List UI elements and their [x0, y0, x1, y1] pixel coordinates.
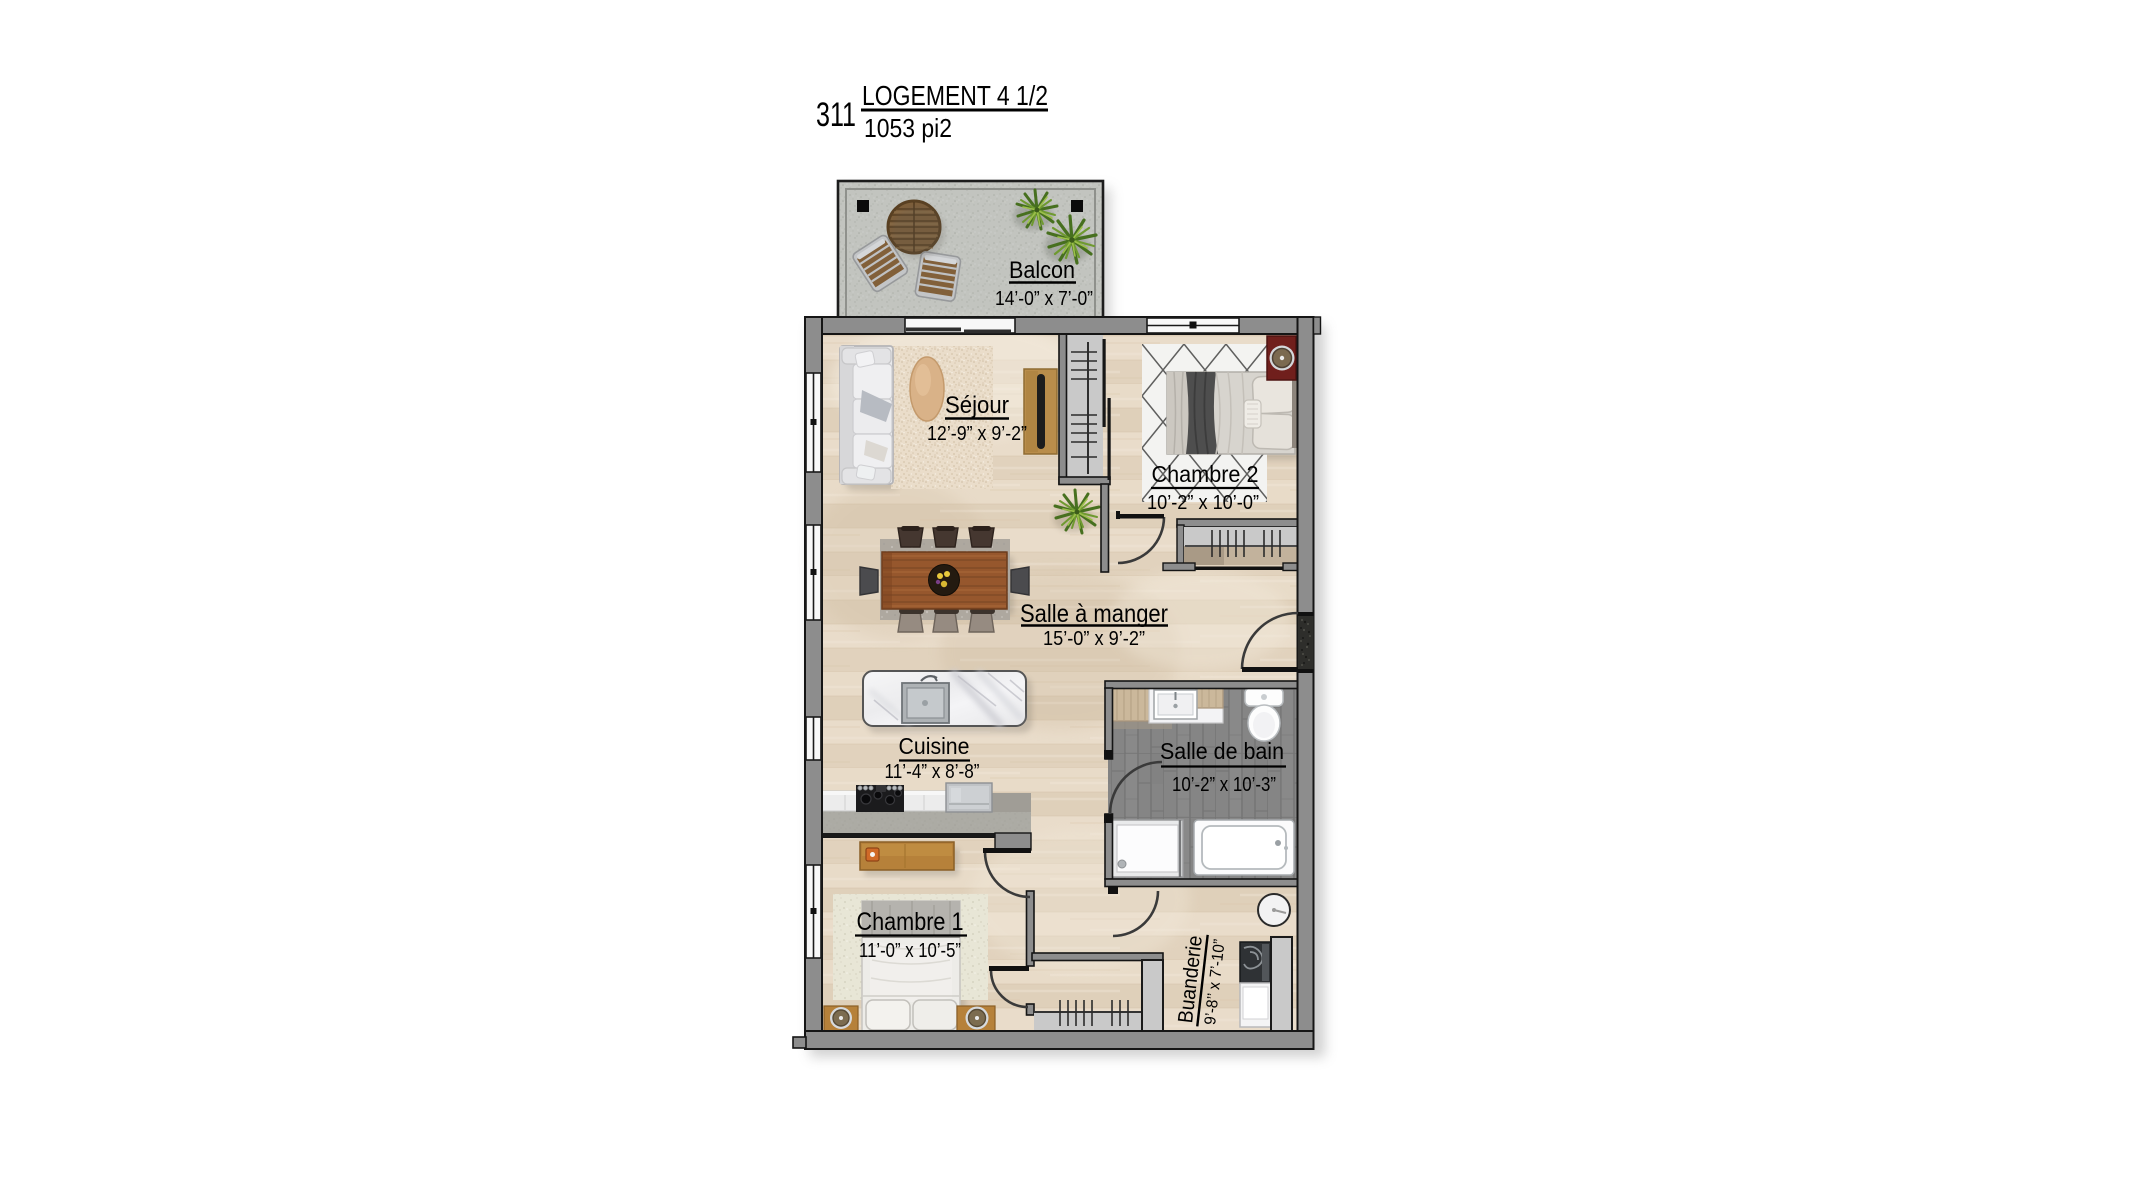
svg-text:11’-4” x 8’-8”: 11’-4” x 8’-8” — [885, 761, 980, 783]
svg-text:Cuisine: Cuisine — [899, 733, 970, 759]
svg-text:311: 311 — [816, 96, 856, 134]
svg-text:Chambre 1: Chambre 1 — [857, 908, 964, 936]
svg-text:Salle de bain: Salle de bain — [1160, 738, 1284, 764]
svg-text:14’-0” x 7’-0”: 14’-0” x 7’-0” — [995, 288, 1093, 310]
svg-text:1053 pi2: 1053 pi2 — [864, 113, 952, 143]
svg-text:LOGEMENT 4 1/2: LOGEMENT 4 1/2 — [862, 80, 1048, 111]
svg-text:Balcon: Balcon — [1009, 257, 1075, 284]
svg-text:Séjour: Séjour — [945, 392, 1009, 419]
svg-text:15’-0” x 9’-2”: 15’-0” x 9’-2” — [1043, 628, 1145, 650]
svg-text:Salle à manger: Salle à manger — [1020, 600, 1168, 628]
svg-text:Chambre 2: Chambre 2 — [1152, 461, 1259, 487]
svg-text:10’-2” x 10’-0”: 10’-2” x 10’-0” — [1147, 492, 1259, 514]
svg-text:10’-2” x 10’-3”: 10’-2” x 10’-3” — [1172, 774, 1276, 796]
svg-text:12’-9” x 9’-2”: 12’-9” x 9’-2” — [927, 423, 1027, 445]
svg-text:11’-0” x 10’-5”: 11’-0” x 10’-5” — [859, 940, 961, 962]
